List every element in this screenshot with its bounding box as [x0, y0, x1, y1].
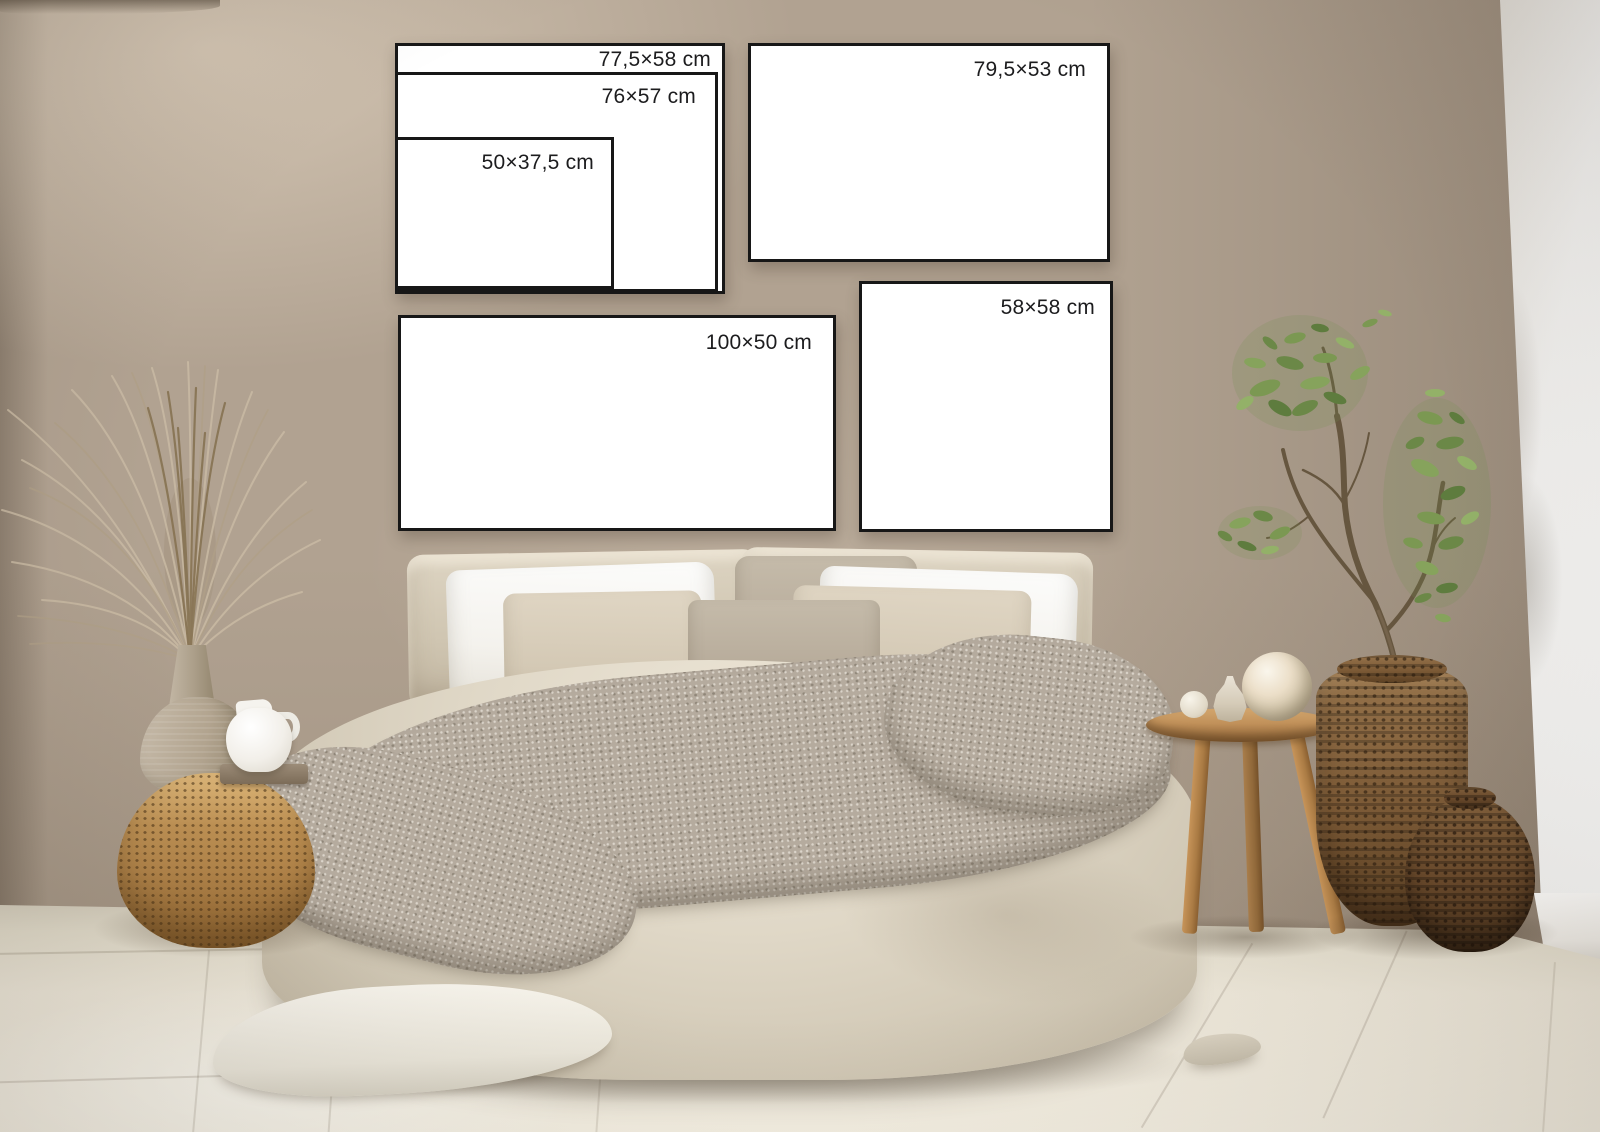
- size-frame-76x57: 76×57 cm 50×37,5 cm: [395, 72, 718, 292]
- frame-size-label: 79,5×53 cm: [974, 58, 1086, 82]
- frame-size-label: 100×50 cm: [706, 331, 812, 355]
- frame-size-label: 77,5×58 cm: [599, 48, 711, 72]
- wicker-pouf-table: [117, 773, 315, 948]
- size-frame-79-5x53: 79,5×53 cm: [748, 43, 1110, 262]
- frame-size-label: 50×37,5 cm: [482, 151, 594, 175]
- white-jug: [226, 700, 304, 772]
- size-frame-50x37-5: 50×37,5 cm: [395, 137, 614, 289]
- pampas-grass: [0, 348, 340, 678]
- frame-size-label: 76×57 cm: [602, 85, 696, 109]
- green-plant: [1185, 288, 1505, 698]
- bedroom-scene: 77,5×58 cm 76×57 cm 50×37,5 cm 79,5×53 c…: [0, 0, 1600, 1132]
- jug-body: [226, 708, 292, 772]
- wicker-floor-basket-small: [1405, 797, 1535, 952]
- size-frame-77-5x58: 77,5×58 cm 76×57 cm 50×37,5 cm: [395, 43, 725, 294]
- size-frame-100x50: 100×50 cm: [398, 315, 836, 531]
- size-frame-58x58: 58×58 cm: [859, 281, 1113, 532]
- frame-size-label: 58×58 cm: [1001, 296, 1095, 320]
